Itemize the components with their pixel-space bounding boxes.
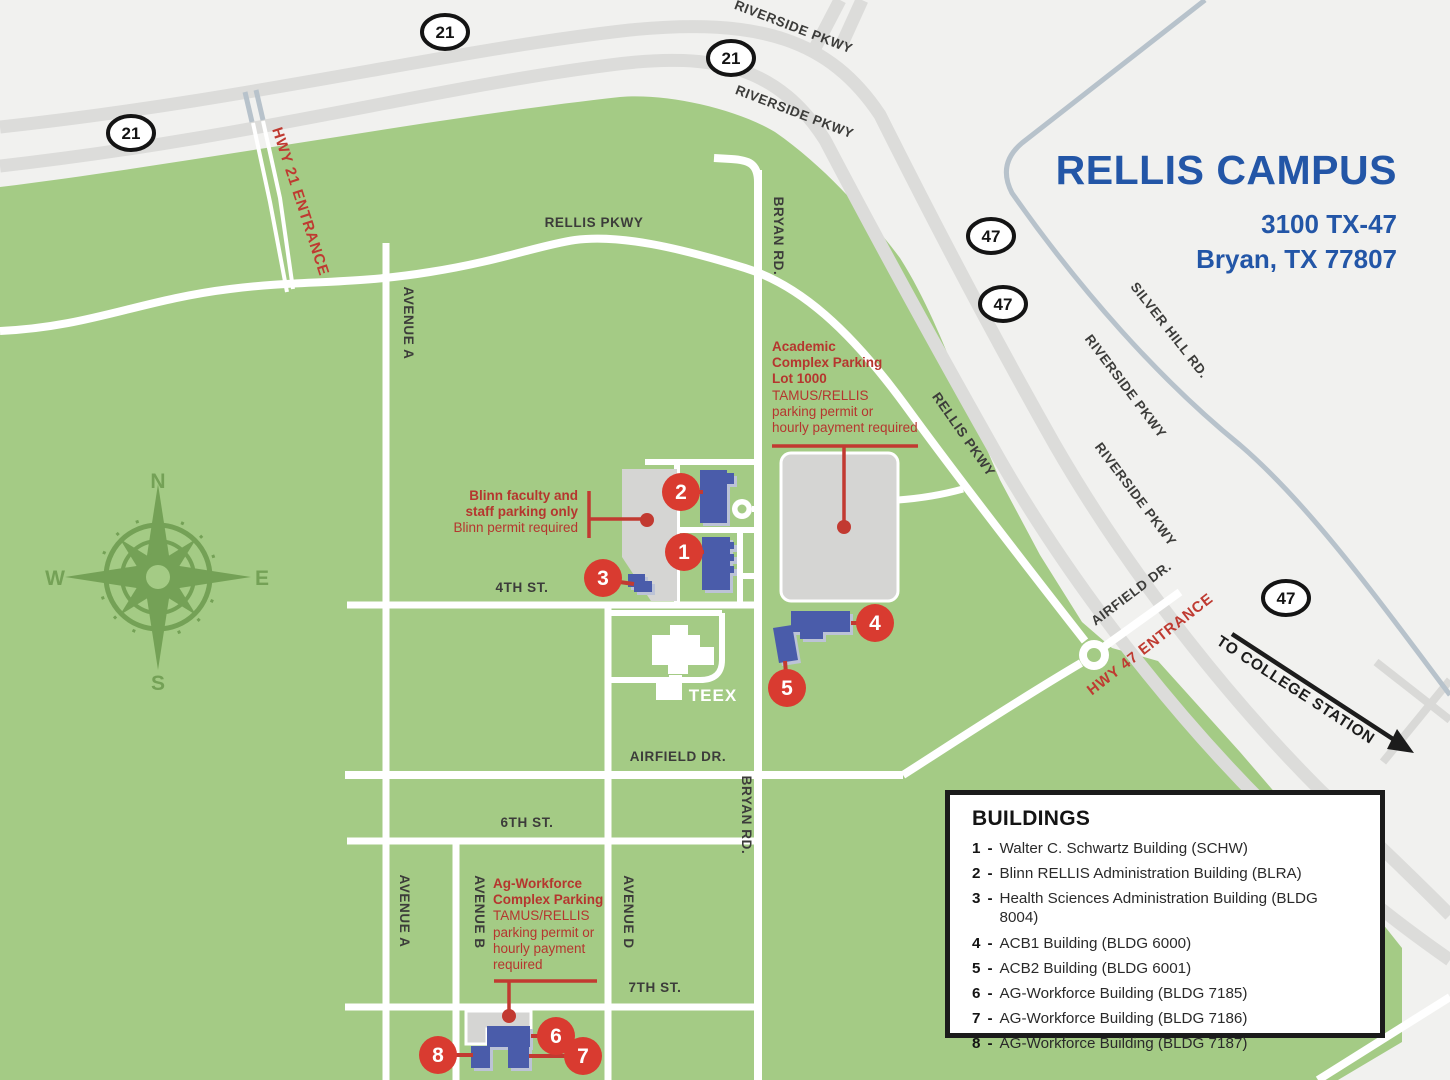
- legend-item-6-label: AG-Workforce Building (BLDG 7185): [1000, 984, 1248, 1003]
- legend-item-8-dash: -: [987, 1034, 992, 1053]
- legend-item-1-label: Walter C. Schwartz Building (SCHW): [1000, 839, 1248, 858]
- marker-2: 2: [662, 473, 700, 511]
- legend-item-1-number: 1: [972, 839, 980, 858]
- legend-item-2-label: Blinn RELLIS Administration Building (BL…: [1000, 864, 1302, 883]
- ag-parking-note-line3: hourly payment: [493, 941, 623, 957]
- legend-item-6-number: 6: [972, 984, 980, 1003]
- marker-5: 5: [768, 669, 806, 707]
- shield-21-a-number: 21: [436, 23, 455, 42]
- shield-47-b: 47: [980, 287, 1026, 321]
- academic-parking-note-line1: TAMUS/RELLIS: [772, 388, 942, 404]
- blinn-parking-note: Blinn permit required: [398, 520, 578, 536]
- teex-label: TEEX: [689, 686, 737, 705]
- academic-parking-note-line2: parking permit or: [772, 404, 942, 420]
- ag-parking-note-line4: required: [493, 957, 623, 973]
- shield-47-a: 47: [968, 219, 1014, 253]
- legend-item-4-dash: -: [987, 934, 992, 953]
- blinn-parking-title-line2: staff parking only: [398, 504, 578, 520]
- shield-21-b-number: 21: [122, 124, 141, 143]
- legend-item-2-number: 2: [972, 864, 980, 883]
- rellis-campus-map-page: { "title": {"name": "RELLIS CAMPUS", "ad…: [0, 0, 1450, 1080]
- compass-west-label: W: [45, 567, 65, 590]
- academic-parking-title-line3: Lot 1000: [772, 371, 942, 387]
- compass-north-label: N: [150, 470, 165, 493]
- legend-item-3-label: Health Sciences Administration Building …: [1000, 889, 1360, 927]
- ag-workforce-parking-callout: Ag-Workforce Complex Parking TAMUS/RELLI…: [493, 876, 623, 973]
- road-label-4th-st: 4TH ST.: [496, 580, 549, 595]
- academic-parking-note-line3: hourly payment required: [772, 420, 942, 436]
- blinn-parking-title-line1: Blinn faculty and: [398, 488, 578, 504]
- ag-parking-note-line1: TAMUS/RELLIS: [493, 908, 623, 924]
- legend-item-7-number: 7: [972, 1009, 980, 1028]
- legend-item-4-number: 4: [972, 934, 980, 953]
- legend-item-3-number: 3: [972, 889, 980, 927]
- marker-4: 4: [856, 604, 894, 642]
- road-label-6th-st: 6TH ST.: [501, 815, 554, 830]
- roundabout-airfield: [1079, 640, 1109, 670]
- shield-47-b-number: 47: [994, 295, 1013, 314]
- marker-3-number: 3: [597, 567, 609, 590]
- legend-item-7-dash: -: [987, 1009, 992, 1028]
- shield-47-a-number: 47: [982, 227, 1001, 246]
- marker-8-number: 8: [432, 1044, 444, 1067]
- road-label-7th-st: 7TH ST.: [629, 980, 682, 995]
- legend-item-3: 3-Health Sciences Administration Buildin…: [972, 889, 1360, 927]
- legend-heading: BUILDINGS: [972, 807, 1360, 831]
- marker-2-number: 2: [675, 481, 687, 504]
- marker-6-number: 6: [550, 1025, 562, 1048]
- marker-7-number: 7: [577, 1045, 589, 1068]
- building-7-bldg7186: [508, 1047, 529, 1068]
- legend-item-4: 4-ACB1 Building (BLDG 6000): [972, 934, 1360, 953]
- address-line-1: 3100 TX-47: [1056, 207, 1397, 242]
- marker-3: 3: [584, 559, 622, 597]
- ag-parking-note-line2: parking permit or: [493, 925, 623, 941]
- blinn-parking-callout: Blinn faculty and staff parking only Bli…: [398, 488, 578, 537]
- page-title: RELLIS CAMPUS: [1056, 150, 1397, 191]
- legend-item-5-dash: -: [987, 959, 992, 978]
- compass-south-label: S: [151, 672, 165, 695]
- marker-1-number: 1: [678, 541, 690, 564]
- marker-7: 7: [564, 1037, 602, 1075]
- marker-1: 1: [665, 533, 703, 571]
- building-1-schw: [702, 537, 734, 590]
- academic-parking-callout: Academic Complex Parking Lot 1000 TAMUS/…: [772, 339, 942, 436]
- legend-item-8: 8-AG-Workforce Building (BLDG 7187): [972, 1034, 1360, 1053]
- legend-item-2: 2-Blinn RELLIS Administration Building (…: [972, 864, 1360, 883]
- shield-21-c: 21: [708, 41, 754, 75]
- building-8-bldg7187: [471, 1046, 490, 1068]
- ag-parking-title-line2: Complex Parking: [493, 892, 623, 908]
- marker-8: 8: [419, 1036, 457, 1074]
- legend-item-3-dash: -: [987, 889, 992, 927]
- road-label-airfield-dr-1: AIRFIELD DR.: [630, 749, 726, 764]
- building-6-bldg7185: [487, 1026, 530, 1047]
- legend-item-8-number: 8: [972, 1034, 980, 1053]
- shield-47-c-number: 47: [1277, 589, 1296, 608]
- legend-item-6-dash: -: [987, 984, 992, 1003]
- shield-21-c-number: 21: [722, 49, 741, 68]
- road-label-avenue-d: AVENUE D: [621, 875, 636, 949]
- marker-5-number: 5: [781, 677, 793, 700]
- shield-21-b: 21: [108, 116, 154, 150]
- road-label-rellis-pkwy-1: RELLIS PKWY: [545, 215, 644, 230]
- legend-item-8-label: AG-Workforce Building (BLDG 7187): [1000, 1034, 1248, 1053]
- buildings-legend: BUILDINGS 1-Walter C. Schwartz Building …: [945, 790, 1385, 1038]
- map-stage: 1 2 3 4 5 6 7 8 21 21 21 47 47 47 RIVERS…: [0, 0, 1450, 1080]
- legend-item-5: 5-ACB2 Building (BLDG 6001): [972, 959, 1360, 978]
- legend-item-4-label: ACB1 Building (BLDG 6000): [1000, 934, 1192, 953]
- legend-item-7: 7-AG-Workforce Building (BLDG 7186): [972, 1009, 1360, 1028]
- legend-item-1-dash: -: [987, 839, 992, 858]
- road-label-avenue-a-2: AVENUE A: [397, 874, 412, 947]
- compass-east-label: E: [255, 567, 269, 590]
- road-label-avenue-b: AVENUE B: [472, 875, 487, 949]
- marker-4-number: 4: [869, 612, 881, 635]
- map-title-block: RELLIS CAMPUS 3100 TX-47 Bryan, TX 77807: [1056, 150, 1397, 277]
- academic-parking-title-line1: Academic: [772, 339, 942, 355]
- ag-parking-title-line1: Ag-Workforce: [493, 876, 623, 892]
- legend-item-5-number: 5: [972, 959, 980, 978]
- legend-item-6: 6-AG-Workforce Building (BLDG 7185): [972, 984, 1360, 1003]
- shield-21-a: 21: [422, 15, 468, 49]
- address-line-2: Bryan, TX 77807: [1056, 242, 1397, 277]
- shield-47-c: 47: [1263, 581, 1309, 615]
- road-label-bryan-rd-2: BRYAN RD.: [739, 776, 754, 855]
- legend-item-1: 1-Walter C. Schwartz Building (SCHW): [972, 839, 1360, 858]
- legend-item-5-label: ACB2 Building (BLDG 6001): [1000, 959, 1192, 978]
- road-label-bryan-rd-1: BRYAN RD.: [771, 197, 786, 276]
- legend-item-2-dash: -: [987, 864, 992, 883]
- academic-parking-title-line2: Complex Parking: [772, 355, 942, 371]
- legend-item-7-label: AG-Workforce Building (BLDG 7186): [1000, 1009, 1248, 1028]
- road-label-avenue-a-1: AVENUE A: [401, 286, 416, 359]
